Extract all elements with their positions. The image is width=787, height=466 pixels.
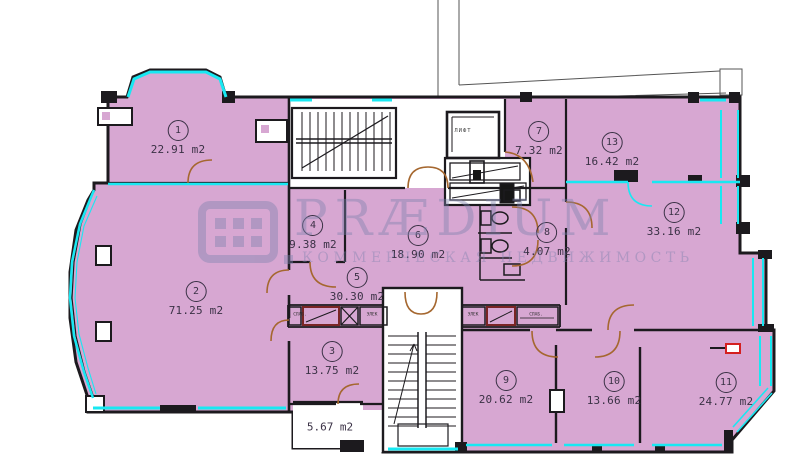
stairwell-area	[383, 288, 462, 452]
shaft-label-slab-left: СЛАБ.	[293, 313, 307, 318]
floorplan-page: 1 22.91 m2 2 71.25 m2 3 13.75 m2 4 9.38 …	[0, 0, 787, 466]
alert-marker	[726, 344, 740, 353]
unnumbered-room-area-label: 5.67 m2	[307, 421, 353, 434]
shaft-label-elek-right: ЭЛЕК	[468, 313, 479, 318]
building-footprint	[70, 70, 774, 452]
adjacent-structure-lines	[438, 0, 742, 101]
elevator-label: ЛИФТ	[454, 128, 471, 134]
floor-plan-drawing	[0, 0, 787, 466]
shaft-label-slab-right: СЛАБ.	[529, 313, 543, 318]
shaft-label-elek-left: ЭЛЕК	[367, 313, 378, 318]
